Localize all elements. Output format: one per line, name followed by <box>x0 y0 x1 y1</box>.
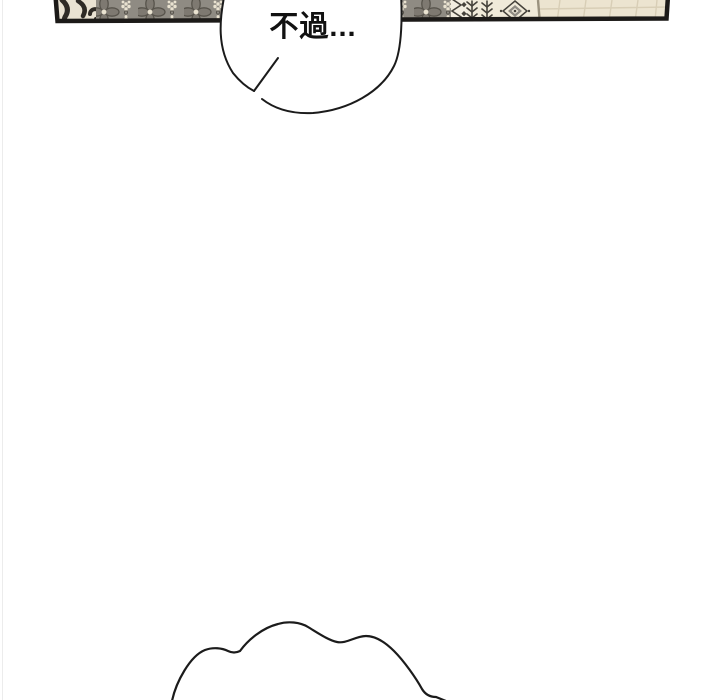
thought-cloud-outline <box>172 622 446 700</box>
speech-bubble-text: 不過... <box>258 3 368 45</box>
comic-page: 不過... <box>0 0 720 700</box>
comic-artwork <box>0 0 720 700</box>
